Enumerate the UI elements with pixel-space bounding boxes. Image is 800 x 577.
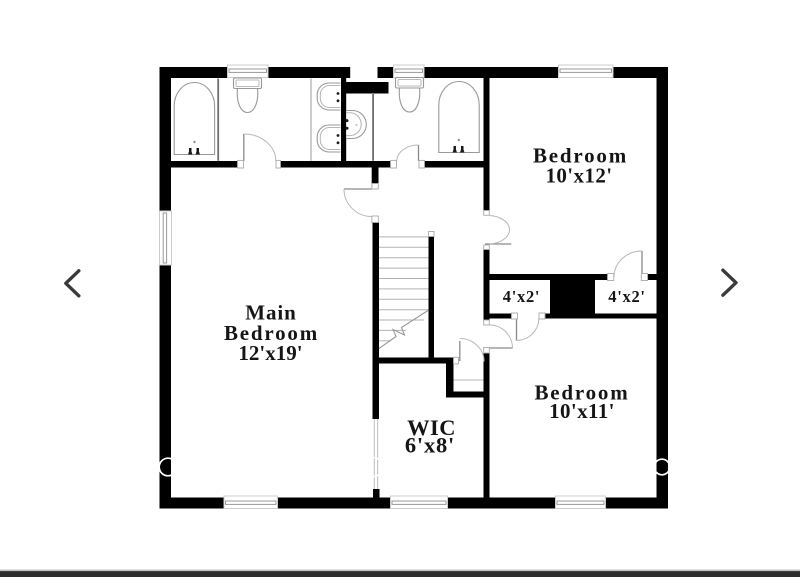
svg-text:10'x12': 10'x12' — [546, 164, 613, 188]
svg-text:10'x11': 10'x11' — [549, 399, 615, 423]
svg-text:4'x2': 4'x2' — [503, 287, 540, 306]
svg-text:4'x2': 4'x2' — [608, 287, 645, 306]
svg-text:12'x19': 12'x19' — [238, 341, 302, 365]
svg-text:6'x8': 6'x8' — [405, 433, 455, 458]
